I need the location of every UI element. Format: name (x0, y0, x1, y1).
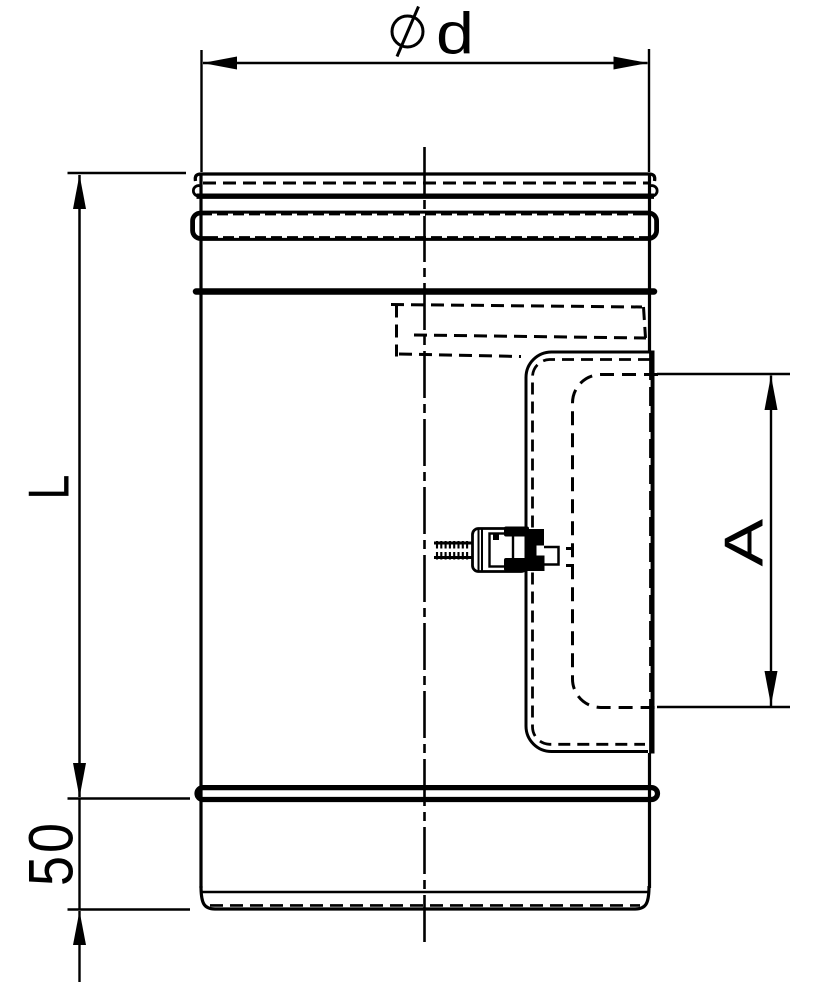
svg-text:A: A (712, 518, 774, 566)
svg-text:50: 50 (17, 820, 87, 886)
svg-text:d: d (436, 0, 474, 66)
svg-text:L: L (17, 475, 80, 500)
